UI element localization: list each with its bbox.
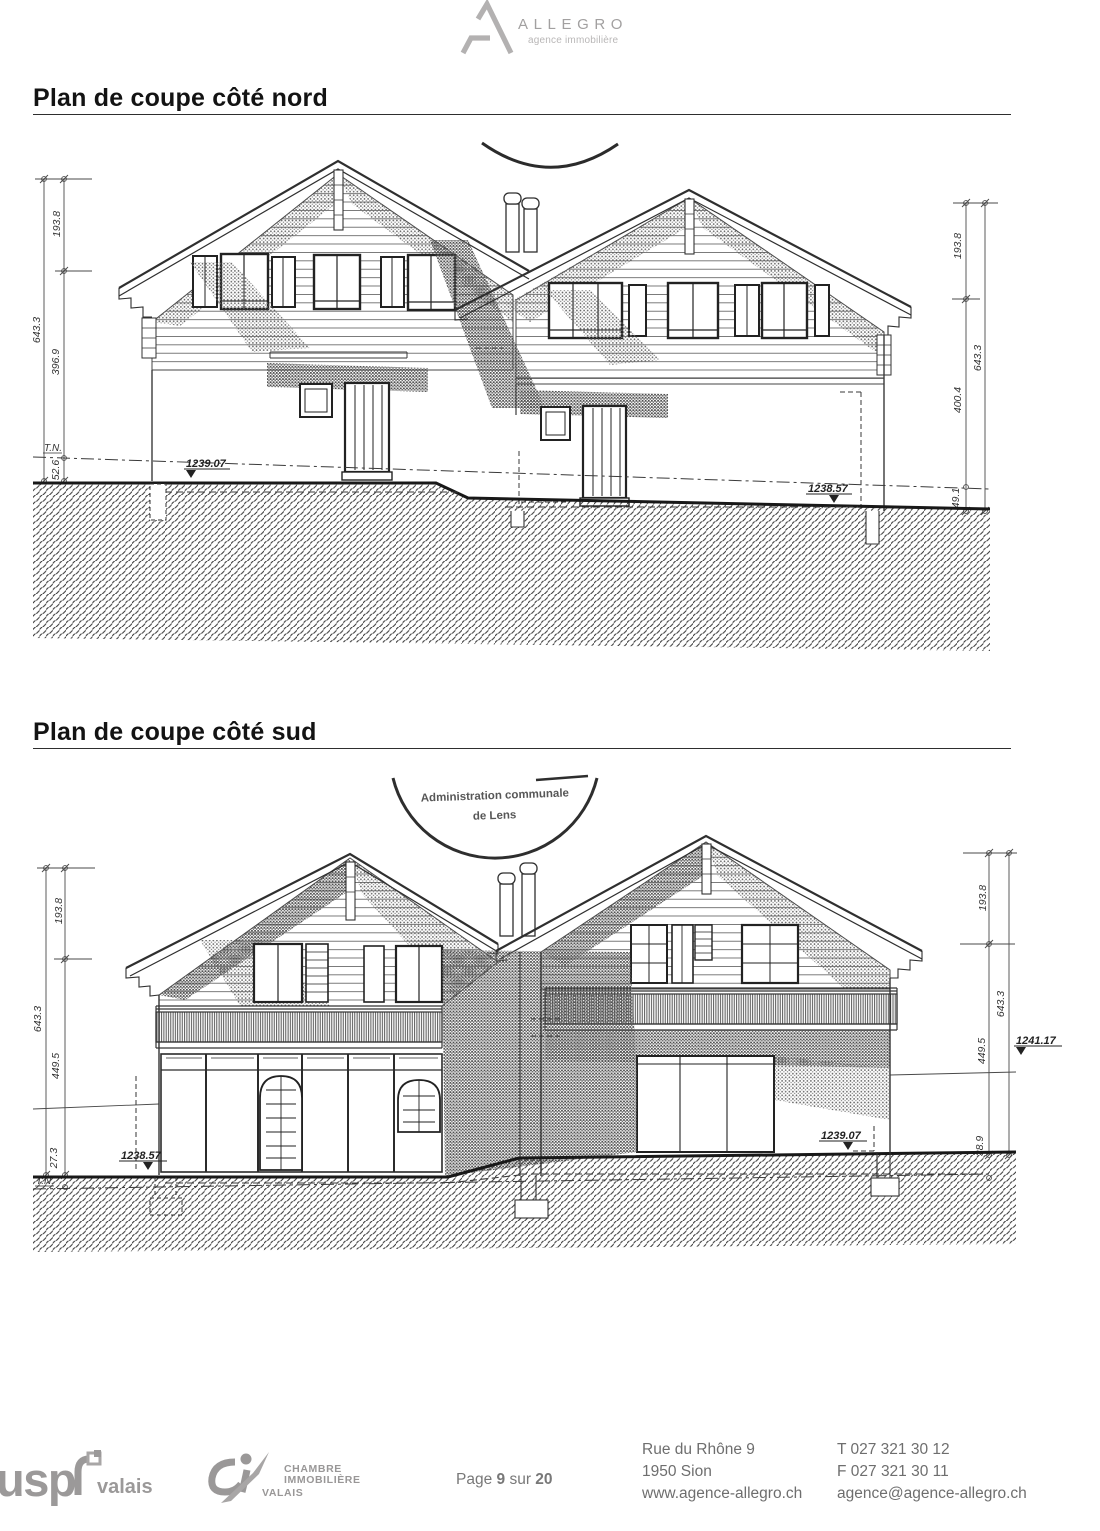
svg-text:1239.07: 1239.07 xyxy=(186,458,227,470)
svg-text:1241.17: 1241.17 xyxy=(1016,1035,1057,1047)
svg-text:1238.57: 1238.57 xyxy=(121,1150,162,1162)
svg-text:Administration communale: Administration communale xyxy=(421,787,570,804)
svg-text:449.5: 449.5 xyxy=(976,1038,988,1064)
svg-text:de Lens: de Lens xyxy=(473,809,517,823)
svg-text:400.4: 400.4 xyxy=(952,387,964,413)
svg-text:643.3: 643.3 xyxy=(995,991,1007,1017)
svg-text:193.8: 193.8 xyxy=(53,898,65,924)
svg-text:52.6: 52.6 xyxy=(50,460,62,481)
svg-text:1238.57: 1238.57 xyxy=(808,483,849,495)
svg-text:T.N.: T.N. xyxy=(44,443,62,454)
svg-text:27.3: 27.3 xyxy=(48,1148,60,1170)
svg-text:643.3: 643.3 xyxy=(31,317,43,343)
svg-text:agence immobilière: agence immobilière xyxy=(528,35,619,46)
svg-text:643.3: 643.3 xyxy=(972,345,984,371)
svg-text:ALLEGRO: ALLEGRO xyxy=(518,16,628,33)
svg-text:193.8: 193.8 xyxy=(51,211,63,237)
svg-text:1239.07: 1239.07 xyxy=(821,1130,862,1142)
svg-text:449.5: 449.5 xyxy=(50,1053,62,1079)
svg-text:193.8: 193.8 xyxy=(952,233,964,259)
svg-text:193.8: 193.8 xyxy=(977,885,989,911)
svg-text:49.1: 49.1 xyxy=(950,488,962,508)
svg-text:396.9: 396.9 xyxy=(50,349,62,375)
svg-text:643.3: 643.3 xyxy=(32,1006,44,1032)
